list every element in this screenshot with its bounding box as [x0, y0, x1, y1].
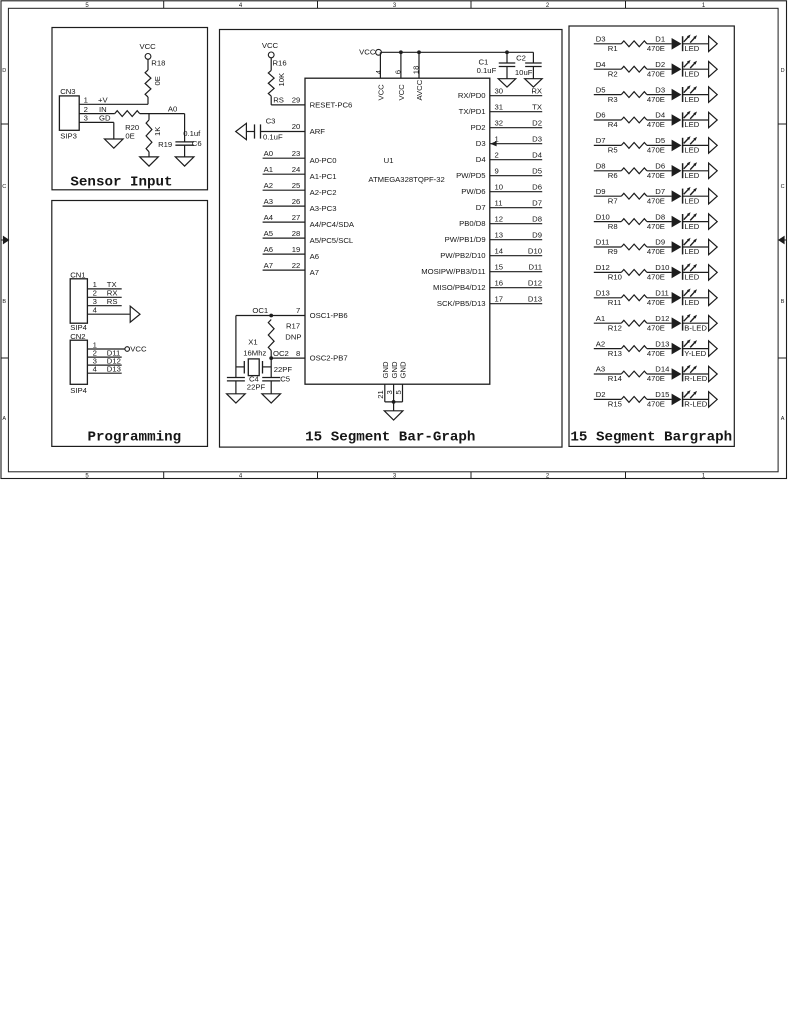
svg-text:10uF: 10uF	[515, 68, 533, 77]
svg-text:470E: 470E	[647, 95, 665, 104]
svg-text:PW/PD5: PW/PD5	[456, 171, 485, 180]
svg-text:D13: D13	[655, 339, 669, 348]
svg-text:+V: +V	[98, 96, 108, 105]
svg-text:VCC: VCC	[397, 84, 406, 101]
svg-text:PW/PB2/D10: PW/PB2/D10	[440, 251, 485, 260]
svg-text:CN3: CN3	[60, 87, 75, 96]
svg-text:B-LED: B-LED	[684, 323, 707, 332]
svg-text:R5: R5	[608, 146, 618, 155]
svg-text:GND: GND	[390, 361, 399, 379]
svg-text:A2: A2	[264, 181, 273, 190]
svg-text:15 Segment Bar-Graph: 15 Segment Bar-Graph	[305, 430, 475, 446]
svg-text:D8: D8	[596, 162, 606, 171]
svg-text:470E: 470E	[647, 323, 665, 332]
svg-text:0.1uF: 0.1uF	[477, 66, 497, 75]
svg-text:R14: R14	[608, 374, 623, 383]
svg-text:21: 21	[376, 390, 385, 399]
svg-text:OSC1-PB6: OSC1-PB6	[310, 311, 348, 320]
svg-text:R4: R4	[608, 120, 619, 129]
svg-text:R6: R6	[608, 171, 618, 180]
svg-text:A7: A7	[264, 261, 273, 270]
svg-text:D11: D11	[655, 289, 669, 298]
svg-text:PD2: PD2	[471, 123, 486, 132]
svg-text:470E: 470E	[647, 247, 665, 256]
svg-text:4: 4	[93, 306, 98, 315]
svg-text:5: 5	[394, 390, 403, 394]
svg-text:R13: R13	[608, 349, 622, 358]
svg-text:31: 31	[495, 103, 504, 112]
svg-text:OSC2-PB7: OSC2-PB7	[310, 354, 348, 363]
svg-text:470E: 470E	[647, 120, 665, 129]
svg-text:D10: D10	[528, 247, 542, 256]
svg-text:LED: LED	[684, 273, 699, 282]
svg-text:LED: LED	[684, 222, 699, 231]
svg-text:13: 13	[495, 231, 504, 240]
svg-text:8: 8	[296, 349, 300, 358]
svg-text:0.1uF: 0.1uF	[263, 132, 283, 141]
svg-text:R7: R7	[608, 196, 618, 205]
svg-text:MISO/PB4/D12: MISO/PB4/D12	[433, 283, 486, 292]
svg-text:22PF: 22PF	[247, 382, 266, 391]
svg-text:GND: GND	[399, 361, 408, 379]
svg-text:D1: D1	[655, 35, 665, 44]
svg-text:R16: R16	[273, 58, 287, 67]
svg-text:VCC: VCC	[376, 84, 385, 101]
svg-text:RX/PD0: RX/PD0	[458, 91, 486, 100]
svg-text:24: 24	[292, 165, 301, 174]
svg-text:R8: R8	[608, 222, 618, 231]
svg-text:4: 4	[374, 69, 383, 74]
svg-text:470E: 470E	[647, 44, 665, 53]
svg-text:A6: A6	[310, 252, 319, 261]
svg-text:7: 7	[296, 306, 300, 315]
svg-text:D10: D10	[655, 263, 669, 272]
svg-text:A: A	[781, 416, 785, 422]
svg-text:PB0/D8: PB0/D8	[459, 219, 486, 228]
svg-text:SIP4: SIP4	[70, 323, 87, 332]
svg-text:10K: 10K	[277, 72, 286, 87]
svg-text:D14: D14	[655, 365, 670, 374]
svg-text:VCC: VCC	[139, 42, 156, 51]
svg-text:R18: R18	[151, 59, 165, 68]
svg-text:17: 17	[495, 295, 504, 304]
svg-text:19: 19	[292, 245, 301, 254]
svg-text:14: 14	[495, 247, 504, 256]
svg-text:470E: 470E	[647, 374, 665, 383]
svg-text:LED: LED	[684, 247, 699, 256]
svg-text:R-LED: R-LED	[684, 374, 708, 383]
svg-text:16Mhz: 16Mhz	[243, 349, 266, 358]
svg-text:10: 10	[495, 183, 504, 192]
svg-text:D7: D7	[655, 187, 665, 196]
svg-text:LED: LED	[684, 298, 699, 307]
svg-text:A0-PC0: A0-PC0	[310, 156, 337, 165]
svg-text:C5: C5	[280, 374, 290, 383]
svg-text:C6: C6	[192, 139, 202, 148]
svg-text:GND: GND	[381, 361, 390, 379]
svg-text:15 Segment Bargraph: 15 Segment Bargraph	[570, 430, 732, 446]
svg-text:470E: 470E	[647, 349, 665, 358]
svg-text:ARF: ARF	[310, 127, 326, 136]
svg-text:D3: D3	[596, 35, 606, 44]
svg-text:D9: D9	[532, 231, 542, 240]
svg-text:470E: 470E	[647, 273, 665, 282]
svg-text:22PF: 22PF	[274, 365, 293, 374]
svg-text:D9: D9	[596, 187, 606, 196]
svg-text:A2-PC2: A2-PC2	[310, 188, 337, 197]
svg-text:D15: D15	[655, 390, 669, 399]
svg-text:VCC: VCC	[359, 48, 376, 57]
svg-text:470E: 470E	[647, 222, 665, 231]
svg-text:18: 18	[411, 66, 420, 75]
svg-text:LED: LED	[684, 146, 699, 155]
svg-text:0E: 0E	[153, 76, 162, 85]
svg-text:D3: D3	[532, 135, 542, 144]
svg-text:D10: D10	[596, 212, 610, 221]
svg-text:2: 2	[495, 151, 499, 160]
svg-text:11: 11	[495, 199, 503, 208]
svg-text:RS: RS	[107, 297, 118, 306]
svg-text:0E: 0E	[125, 132, 134, 141]
svg-text:A0: A0	[168, 104, 177, 113]
svg-text:AVCC: AVCC	[415, 79, 424, 100]
svg-text:32: 32	[495, 119, 504, 128]
svg-text:470E: 470E	[647, 171, 665, 180]
svg-text:470E: 470E	[647, 298, 665, 307]
svg-text:R11: R11	[608, 298, 622, 307]
svg-text:U1: U1	[384, 156, 394, 165]
svg-text:28: 28	[292, 229, 301, 238]
svg-text:D: D	[781, 68, 785, 74]
svg-text:470E: 470E	[647, 400, 665, 409]
svg-text:D9: D9	[655, 238, 665, 247]
svg-text:470E: 470E	[647, 196, 665, 205]
svg-text:D5: D5	[596, 85, 606, 94]
svg-text:D8: D8	[532, 215, 542, 224]
svg-text:LED: LED	[684, 120, 699, 129]
svg-text:D13: D13	[528, 295, 542, 304]
svg-text:3: 3	[84, 114, 88, 123]
svg-text:IN: IN	[99, 105, 107, 114]
svg-text:D11: D11	[596, 238, 610, 247]
svg-text:R3: R3	[608, 95, 618, 104]
svg-text:1K: 1K	[153, 126, 162, 136]
svg-text:D5: D5	[655, 136, 665, 145]
svg-text:Y-LED: Y-LED	[684, 349, 706, 358]
svg-text:470E: 470E	[647, 146, 665, 155]
svg-text:RX: RX	[531, 87, 542, 96]
svg-text:D: D	[2, 68, 6, 74]
svg-text:VCC: VCC	[262, 41, 279, 50]
svg-text:1: 1	[84, 96, 88, 105]
svg-text:15: 15	[495, 263, 504, 272]
svg-text:A7: A7	[310, 268, 319, 277]
svg-text:0.1uf: 0.1uf	[183, 129, 201, 138]
svg-text:D11: D11	[528, 263, 542, 272]
svg-text:26: 26	[292, 197, 301, 206]
svg-text:9: 9	[495, 167, 499, 176]
svg-text:R12: R12	[608, 323, 622, 332]
svg-text:LED: LED	[684, 44, 699, 53]
svg-text:OC2: OC2	[273, 349, 289, 358]
svg-text:D2: D2	[655, 60, 665, 69]
svg-text:D13: D13	[107, 365, 121, 374]
svg-text:R-LED: R-LED	[684, 400, 708, 409]
svg-text:LED: LED	[684, 69, 699, 78]
svg-text:TX/PD1: TX/PD1	[459, 107, 486, 116]
svg-text:A3: A3	[596, 365, 605, 374]
svg-text:B: B	[781, 299, 785, 305]
svg-text:D4: D4	[596, 60, 607, 69]
svg-text:SCK/PB5/D13: SCK/PB5/D13	[437, 299, 486, 308]
svg-text:R10: R10	[608, 273, 622, 282]
svg-text:LED: LED	[684, 95, 699, 104]
svg-text:OC1: OC1	[252, 306, 268, 315]
svg-text:VCC: VCC	[130, 344, 147, 353]
svg-text:R2: R2	[608, 69, 618, 78]
svg-text:4: 4	[93, 365, 98, 374]
svg-text:D8: D8	[655, 212, 665, 221]
svg-text:C2: C2	[516, 53, 526, 62]
svg-text:A1-PC1: A1-PC1	[310, 172, 337, 181]
svg-text:3: 3	[385, 390, 394, 394]
svg-text:6: 6	[393, 70, 402, 74]
svg-text:R1: R1	[608, 44, 618, 53]
svg-text:D7: D7	[596, 136, 606, 145]
svg-text:D4: D4	[532, 151, 543, 160]
svg-text:D4: D4	[476, 155, 487, 164]
svg-text:LED: LED	[684, 196, 699, 205]
svg-text:A2: A2	[596, 339, 605, 348]
svg-text:R9: R9	[608, 247, 618, 256]
svg-text:B: B	[2, 299, 6, 305]
svg-text:D13: D13	[596, 289, 610, 298]
svg-text:GD: GD	[99, 114, 111, 123]
svg-text:A4: A4	[264, 213, 274, 222]
svg-text:D12: D12	[596, 263, 610, 272]
svg-text:D3: D3	[476, 139, 486, 148]
svg-text:2: 2	[84, 105, 88, 114]
svg-text:A: A	[2, 416, 6, 422]
svg-text:A4/PC4/SDA: A4/PC4/SDA	[310, 220, 355, 229]
svg-text:29: 29	[292, 96, 301, 105]
svg-text:D6: D6	[655, 162, 665, 171]
svg-text:30: 30	[495, 87, 504, 96]
svg-text:A0: A0	[264, 149, 273, 158]
svg-text:RESET-PC6: RESET-PC6	[310, 101, 353, 110]
svg-text:D5: D5	[532, 167, 542, 176]
svg-text:Sensor Input: Sensor Input	[70, 174, 172, 190]
svg-text:MOSIPW/PB3/D11: MOSIPW/PB3/D11	[421, 267, 485, 276]
svg-text:C: C	[2, 184, 6, 190]
svg-text:D2: D2	[532, 119, 542, 128]
svg-text:D6: D6	[596, 111, 606, 120]
svg-text:RS: RS	[273, 96, 284, 105]
svg-text:23: 23	[292, 149, 301, 158]
svg-text:D3: D3	[655, 85, 665, 94]
svg-text:DNP: DNP	[285, 333, 301, 342]
svg-text:C3: C3	[266, 116, 276, 125]
svg-text:TX: TX	[532, 103, 542, 112]
svg-text:D7: D7	[476, 203, 486, 212]
svg-text:A3-PC3: A3-PC3	[310, 204, 337, 213]
svg-text:A5: A5	[264, 229, 273, 238]
svg-text:X1: X1	[248, 338, 257, 347]
svg-text:SIP4: SIP4	[70, 386, 87, 395]
svg-text:27: 27	[292, 213, 301, 222]
svg-text:22: 22	[292, 261, 301, 270]
svg-text:D4: D4	[655, 111, 666, 120]
svg-text:Programming: Programming	[87, 429, 181, 445]
svg-text:A5/PC5/SCL: A5/PC5/SCL	[310, 236, 354, 245]
svg-text:470E: 470E	[647, 69, 665, 78]
svg-text:PW/PB1/D9: PW/PB1/D9	[445, 235, 486, 244]
svg-text:PW/D6: PW/D6	[461, 187, 485, 196]
svg-text:A3: A3	[264, 197, 273, 206]
svg-text:16: 16	[495, 279, 504, 288]
svg-text:D6: D6	[532, 183, 542, 192]
svg-text:D7: D7	[532, 199, 542, 208]
svg-text:D2: D2	[596, 390, 606, 399]
svg-text:A1: A1	[596, 314, 605, 323]
svg-text:12: 12	[495, 215, 504, 224]
svg-text:D12: D12	[528, 279, 542, 288]
svg-text:A6: A6	[264, 245, 273, 254]
svg-text:LED: LED	[684, 171, 699, 180]
svg-text:D12: D12	[655, 314, 669, 323]
svg-text:ATMEGA328TQPF-32: ATMEGA328TQPF-32	[368, 175, 444, 184]
svg-text:25: 25	[292, 181, 301, 190]
svg-text:R17: R17	[286, 321, 300, 330]
svg-text:SIP3: SIP3	[60, 131, 77, 140]
svg-text:20: 20	[292, 122, 301, 131]
svg-text:R19: R19	[158, 140, 172, 149]
svg-text:A1: A1	[264, 165, 273, 174]
svg-text:R15: R15	[608, 400, 622, 409]
svg-text:C: C	[781, 184, 785, 190]
